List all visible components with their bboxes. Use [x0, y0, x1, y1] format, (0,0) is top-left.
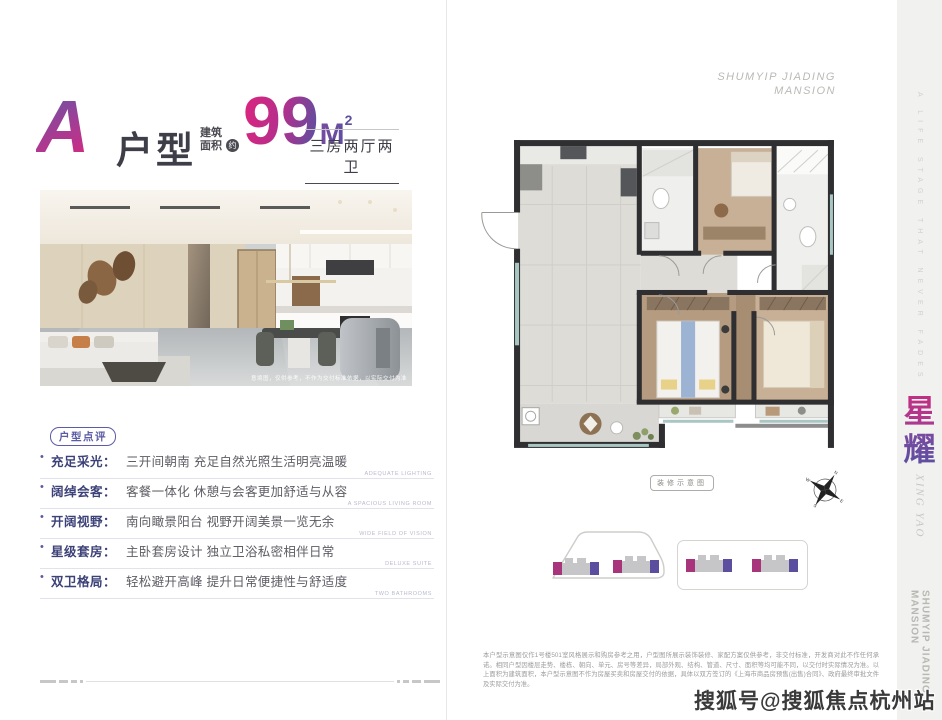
compass-west-label: W — [805, 477, 812, 484]
review-item-desc: 三开间朝南 充足自然光照生活明亮温暖 — [126, 451, 347, 470]
review-item-view: • 开阔视野： 南向瞰景阳台 视野开阔美景一览无余 WIDE FIELD OF … — [40, 509, 434, 539]
unit-highlight-left — [553, 562, 562, 575]
sidebar-pinyin: XING YAO — [914, 474, 926, 538]
review-item-desc: 南向瞰景阳台 视野开阔美景一览无余 — [126, 511, 335, 530]
logo-char-xing: 星 — [903, 393, 935, 429]
unit-type-letter: A — [36, 90, 89, 164]
building-block — [562, 563, 591, 575]
bullet-dot-icon: • — [40, 541, 44, 553]
review-item-desc: 客餐一体化 休憩与会客更加舒适与从容 — [126, 481, 347, 500]
building-block — [761, 560, 790, 572]
compass-south-label: S — [813, 503, 818, 509]
floor-plan — [508, 134, 840, 456]
review-item-label: 星级套房： — [51, 541, 116, 560]
sidebar-tagline: A LIFE STAGE THAT NEVER FADES — [916, 92, 923, 383]
right-sidebar: A LIFE STAGE THAT NEVER FADES 星 耀 XING Y… — [897, 0, 942, 720]
review-item-label: 开阔视野： — [51, 511, 116, 530]
compass-east-label: E — [839, 498, 844, 504]
plan-caption-badge: 装修示意图 — [650, 475, 714, 491]
unit-highlight-left — [686, 559, 695, 572]
brand-name-top: SHUMYIP JIADING MANSION — [700, 70, 836, 98]
area-prefix-label: 建筑面积 — [200, 127, 222, 153]
building-footprint — [613, 555, 659, 575]
review-list: • 充足采光： 三开间朝南 充足自然光照生活明亮温暖 ADEQUATE LIGH… — [40, 449, 434, 599]
review-item-label: 充足采光： — [51, 451, 116, 470]
bullet-dot-icon: • — [40, 511, 44, 523]
review-item-livingroom: • 阔绰会客： 客餐一体化 休憩与会客更加舒适与从容 A SPACIOUS LI… — [40, 479, 434, 509]
unit-highlight-left — [752, 559, 761, 572]
unit-highlight-right — [650, 560, 659, 573]
decorative-dash-ruler — [40, 679, 440, 683]
photo-disclaimer-caption: 意境图，仅供参考，不作为交付标准依据，以实际交付为准 — [251, 374, 407, 382]
review-item-english: TWO BATHROOMS — [375, 591, 432, 597]
review-item-label: 双卫格局： — [51, 571, 116, 590]
area-prefix-line2: 面积 — [200, 140, 222, 152]
dash — [424, 680, 440, 683]
interior-photo-graphic — [40, 190, 412, 386]
compass-icon: N E S W — [805, 470, 845, 510]
compass-north-label: N — [833, 470, 838, 476]
brochure-page: A 户型 建筑面积 约 99 M 2 三房两厅两卫 — [0, 0, 942, 720]
bullet-dot-icon: • — [40, 571, 44, 583]
sohu-watermark: 搜狐号@搜狐焦点杭州站 — [694, 685, 935, 715]
building-block — [622, 561, 651, 573]
brand-line2: MANSION — [774, 85, 836, 97]
logo-char-yao: 耀 — [903, 431, 935, 467]
dash — [397, 680, 400, 683]
site-diagram-right — [677, 540, 808, 590]
center-fold-divider — [446, 0, 447, 720]
building-footprint — [752, 554, 798, 574]
unit-highlight-right — [789, 559, 798, 572]
interior-photo: 意境图，仅供参考，不作为交付标准依据，以实际交付为准 — [40, 190, 412, 386]
review-item-english: WIDE FIELD OF VISION — [359, 531, 432, 537]
review-item-bathrooms: • 双卫格局： 轻松避开高峰 提升日常便捷性与舒适度 TWO BATHROOMS — [40, 569, 434, 599]
review-item-label: 阔绰会客： — [51, 481, 116, 500]
dash — [71, 680, 77, 683]
review-item-desc: 主卧套房设计 独立卫浴私密相伴日常 — [126, 541, 335, 560]
site-diagram-left — [543, 526, 673, 584]
unit-highlight-right — [590, 562, 599, 575]
unit-type-suffix: 户型 — [116, 120, 196, 174]
area-approx-circle: 约 — [226, 139, 239, 152]
bullet-dot-icon: • — [40, 451, 44, 463]
brand-line1: SHUMYIP JIADING — [717, 71, 836, 83]
building-footprint — [553, 557, 599, 577]
review-item-english: DELUXE SUITE — [385, 561, 432, 567]
area-prefix-line1: 建筑 — [200, 127, 222, 139]
sidebar-logo-characters: 星 耀 — [897, 392, 942, 468]
dash — [40, 680, 56, 683]
building-block — [695, 560, 724, 572]
review-item-english: A SPACIOUS LIVING ROOM — [348, 501, 432, 507]
dash — [403, 680, 409, 683]
room-layout-label: 三房两厅两卫 — [305, 129, 399, 184]
area-exponent: 2 — [345, 112, 353, 128]
building-footprint — [686, 554, 732, 574]
sidebar-brand-vertical: SHUMYIP JIADING MANSION — [909, 590, 931, 694]
ruler-line — [86, 681, 394, 682]
unit-highlight-right — [723, 559, 732, 572]
dash — [59, 680, 68, 683]
review-item-suite: • 星级套房： 主卧套房设计 独立卫浴私密相伴日常 DELUXE SUITE — [40, 539, 434, 569]
dash — [412, 680, 421, 683]
unit-highlight-left — [613, 560, 622, 573]
legal-disclaimer: 本户型示意图仅作1号楼501室风格展示和购房参考之用，户型图所展示装饰装修、家配… — [483, 651, 879, 689]
review-item-english: ADEQUATE LIGHTING — [364, 471, 432, 477]
review-item-lighting: • 充足采光： 三开间朝南 充足自然光照生活明亮温暖 ADEQUATE LIGH… — [40, 449, 434, 479]
brand-vertical-line1: SHUMYIP JIADING — [920, 590, 931, 694]
review-item-desc: 轻松避开高峰 提升日常便捷性与舒适度 — [126, 571, 347, 590]
bullet-dot-icon: • — [40, 481, 44, 493]
brand-vertical-line2: MANSION — [909, 590, 920, 644]
review-section-badge: 户型点评 — [50, 427, 116, 446]
dash — [80, 680, 83, 683]
